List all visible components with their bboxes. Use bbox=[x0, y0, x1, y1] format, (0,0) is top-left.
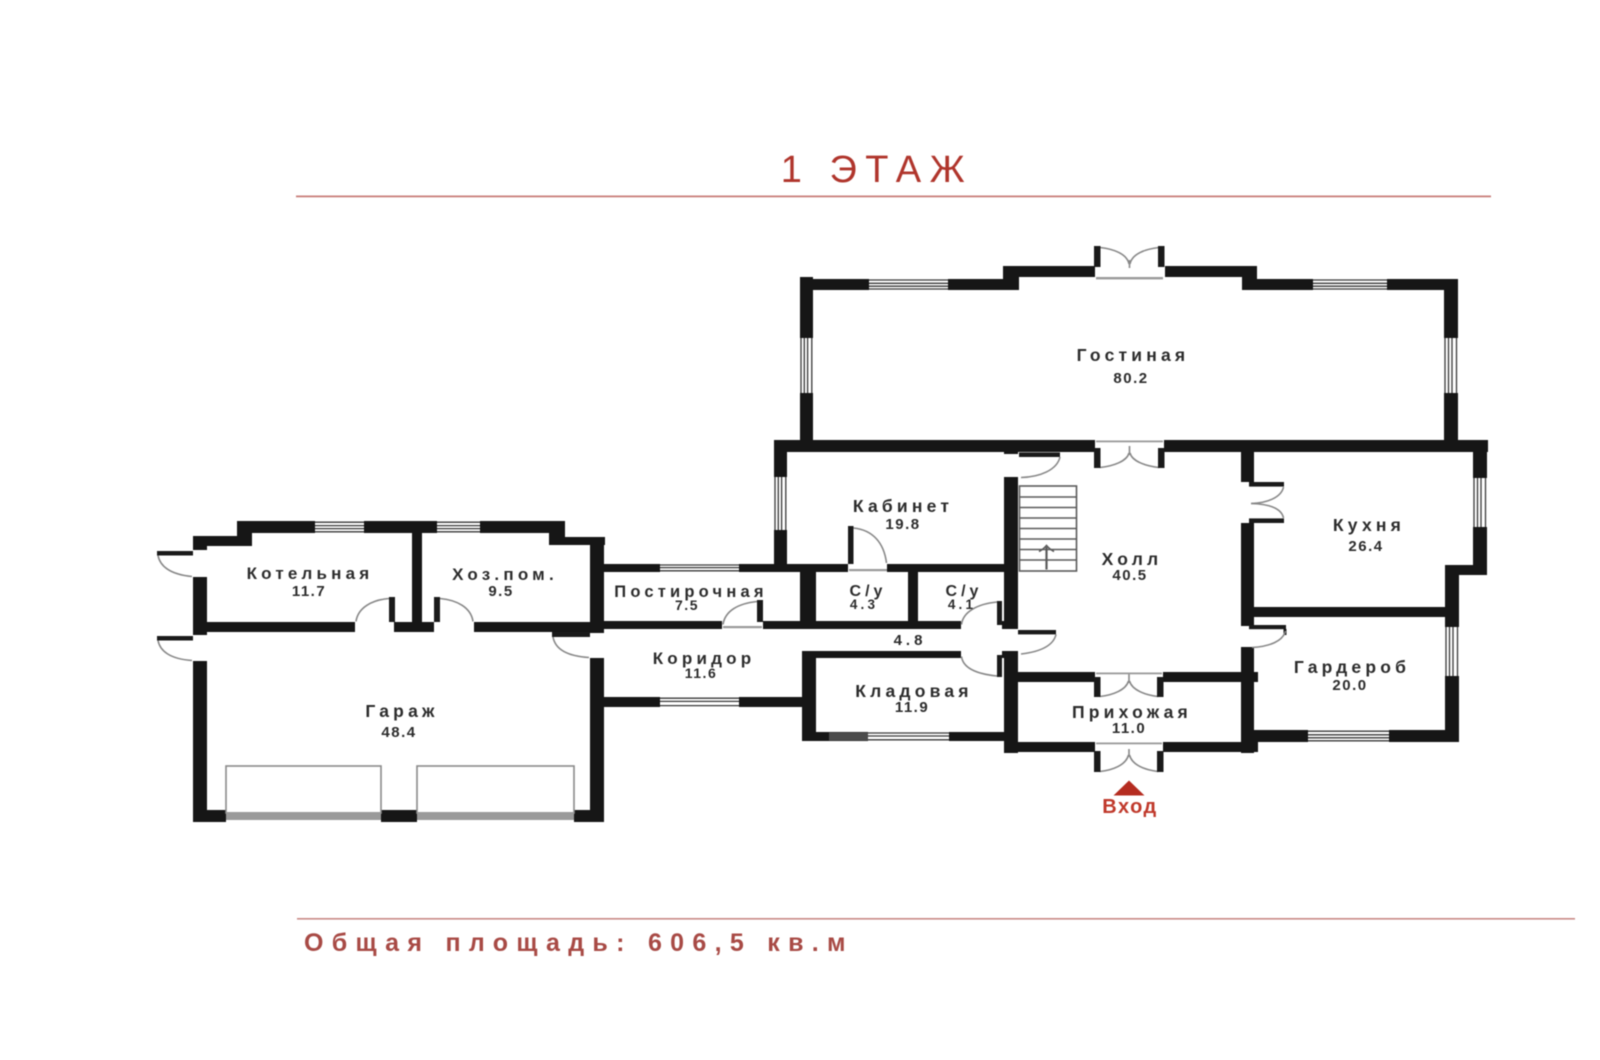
svg-text:9.5: 9.5 bbox=[488, 583, 513, 600]
svg-text:Гардероб: Гардероб bbox=[1294, 657, 1410, 677]
svg-text:Прихожая: Прихожая bbox=[1072, 702, 1192, 722]
svg-text:Хоз.пом.: Хоз.пом. bbox=[452, 565, 558, 584]
svg-text:Кухня: Кухня bbox=[1333, 515, 1405, 535]
svg-text:11.0: 11.0 bbox=[1112, 720, 1146, 737]
svg-text:Вход: Вход bbox=[1102, 796, 1157, 818]
svg-text:7.5: 7.5 bbox=[675, 597, 699, 613]
svg-text:40.5: 40.5 bbox=[1112, 567, 1147, 584]
svg-text:Гостиная: Гостиная bbox=[1077, 345, 1190, 365]
svg-text:Кладовая: Кладовая bbox=[855, 681, 972, 701]
svg-text:19.8: 19.8 bbox=[885, 516, 920, 533]
svg-text:80.2: 80.2 bbox=[1113, 370, 1148, 387]
svg-text:Холл: Холл bbox=[1102, 549, 1163, 569]
svg-text:11.7: 11.7 bbox=[292, 583, 326, 600]
svg-text:Гараж: Гараж bbox=[365, 701, 438, 721]
svg-text:1 ЭТАЖ: 1 ЭТАЖ bbox=[781, 149, 973, 191]
svg-text:4.1: 4.1 bbox=[948, 597, 976, 612]
svg-text:4.3: 4.3 bbox=[850, 597, 878, 612]
svg-text:Котельная: Котельная bbox=[247, 564, 374, 583]
svg-text:11.6: 11.6 bbox=[685, 665, 717, 681]
svg-text:26.4: 26.4 bbox=[1348, 538, 1383, 555]
svg-text:4.8: 4.8 bbox=[894, 632, 927, 649]
svg-text:20.0: 20.0 bbox=[1332, 677, 1367, 694]
svg-text:Общая площадь: 606,5 кв.м: Общая площадь: 606,5 кв.м bbox=[304, 929, 854, 957]
svg-text:48.4: 48.4 bbox=[381, 724, 416, 741]
svg-text:Кабинет: Кабинет bbox=[853, 496, 953, 516]
svg-text:11.9: 11.9 bbox=[895, 699, 929, 716]
